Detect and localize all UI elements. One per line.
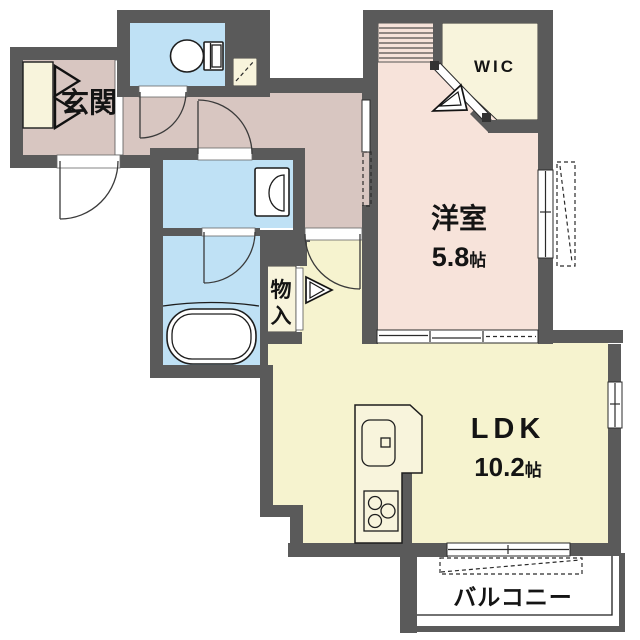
wall-segment	[608, 344, 621, 382]
wall-segment	[400, 550, 417, 633]
balcony-window	[447, 543, 570, 556]
room-ldk-floor	[268, 343, 608, 543]
wall-segment	[570, 543, 620, 556]
toilet-door-opening	[139, 86, 187, 97]
wall-segment	[608, 428, 621, 556]
room-label-balcony: バルコニー	[453, 584, 573, 610]
wall-segment	[233, 10, 257, 58]
room-label-bedroom: 洋室	[431, 202, 487, 234]
door-pivot	[482, 113, 491, 122]
wall-segment	[363, 13, 378, 93]
front-door-arc	[60, 161, 118, 219]
wall-segment	[10, 47, 23, 168]
wall-segment	[362, 330, 378, 344]
door-pivot	[430, 61, 439, 70]
wall-segment	[260, 378, 273, 509]
wall-segment	[293, 148, 305, 232]
nook-shelf-floor	[233, 58, 257, 86]
hallway-floor	[122, 93, 369, 155]
ldk-door-opening	[305, 228, 362, 240]
wall-segment	[363, 10, 553, 23]
toilet-fixture	[171, 40, 224, 72]
washroom-door-opening	[198, 148, 252, 160]
bedroom-shelf-stripes	[378, 23, 435, 62]
wall-segment	[268, 78, 378, 93]
balcony-outer-edge	[402, 626, 625, 632]
bedroom-window	[538, 170, 553, 258]
wall-segment	[362, 93, 378, 100]
bedroom-ldk-partition	[377, 330, 538, 343]
wall-segment	[150, 148, 163, 378]
bathroom-door-opening	[202, 228, 255, 236]
room-label-genkan: 玄関	[61, 86, 117, 118]
room-label-ldk: LDK	[471, 413, 546, 445]
floorplan-page: 玄関 洋室 5.8帖 LDK 10.2帖 WIC 物入 バルコニー	[0, 0, 640, 640]
wall-segment	[260, 236, 268, 378]
wall-segment	[150, 365, 273, 378]
washbasin-fixture	[255, 168, 289, 216]
wall-segment	[488, 120, 538, 133]
ac-slot-balcony	[440, 558, 582, 574]
ldk-window	[608, 382, 622, 428]
wall-segment	[538, 330, 623, 343]
wall-segment	[260, 332, 302, 344]
wall-segment	[10, 47, 122, 60]
ac-slot-bedroom	[557, 162, 575, 266]
front-door-opening	[57, 155, 120, 168]
room-label-wic: WIC	[474, 57, 516, 76]
wall-segment	[290, 517, 303, 545]
wall-segment	[362, 211, 378, 330]
wall-segment	[225, 10, 233, 87]
wall-segment	[538, 23, 553, 170]
wall-segment	[288, 543, 448, 557]
wall-segment	[402, 473, 412, 543]
floorplan-svg: 玄関 洋室 5.8帖 LDK 10.2帖 WIC 物入 バルコニー	[0, 0, 640, 640]
balcony-outer-edge	[619, 553, 625, 632]
